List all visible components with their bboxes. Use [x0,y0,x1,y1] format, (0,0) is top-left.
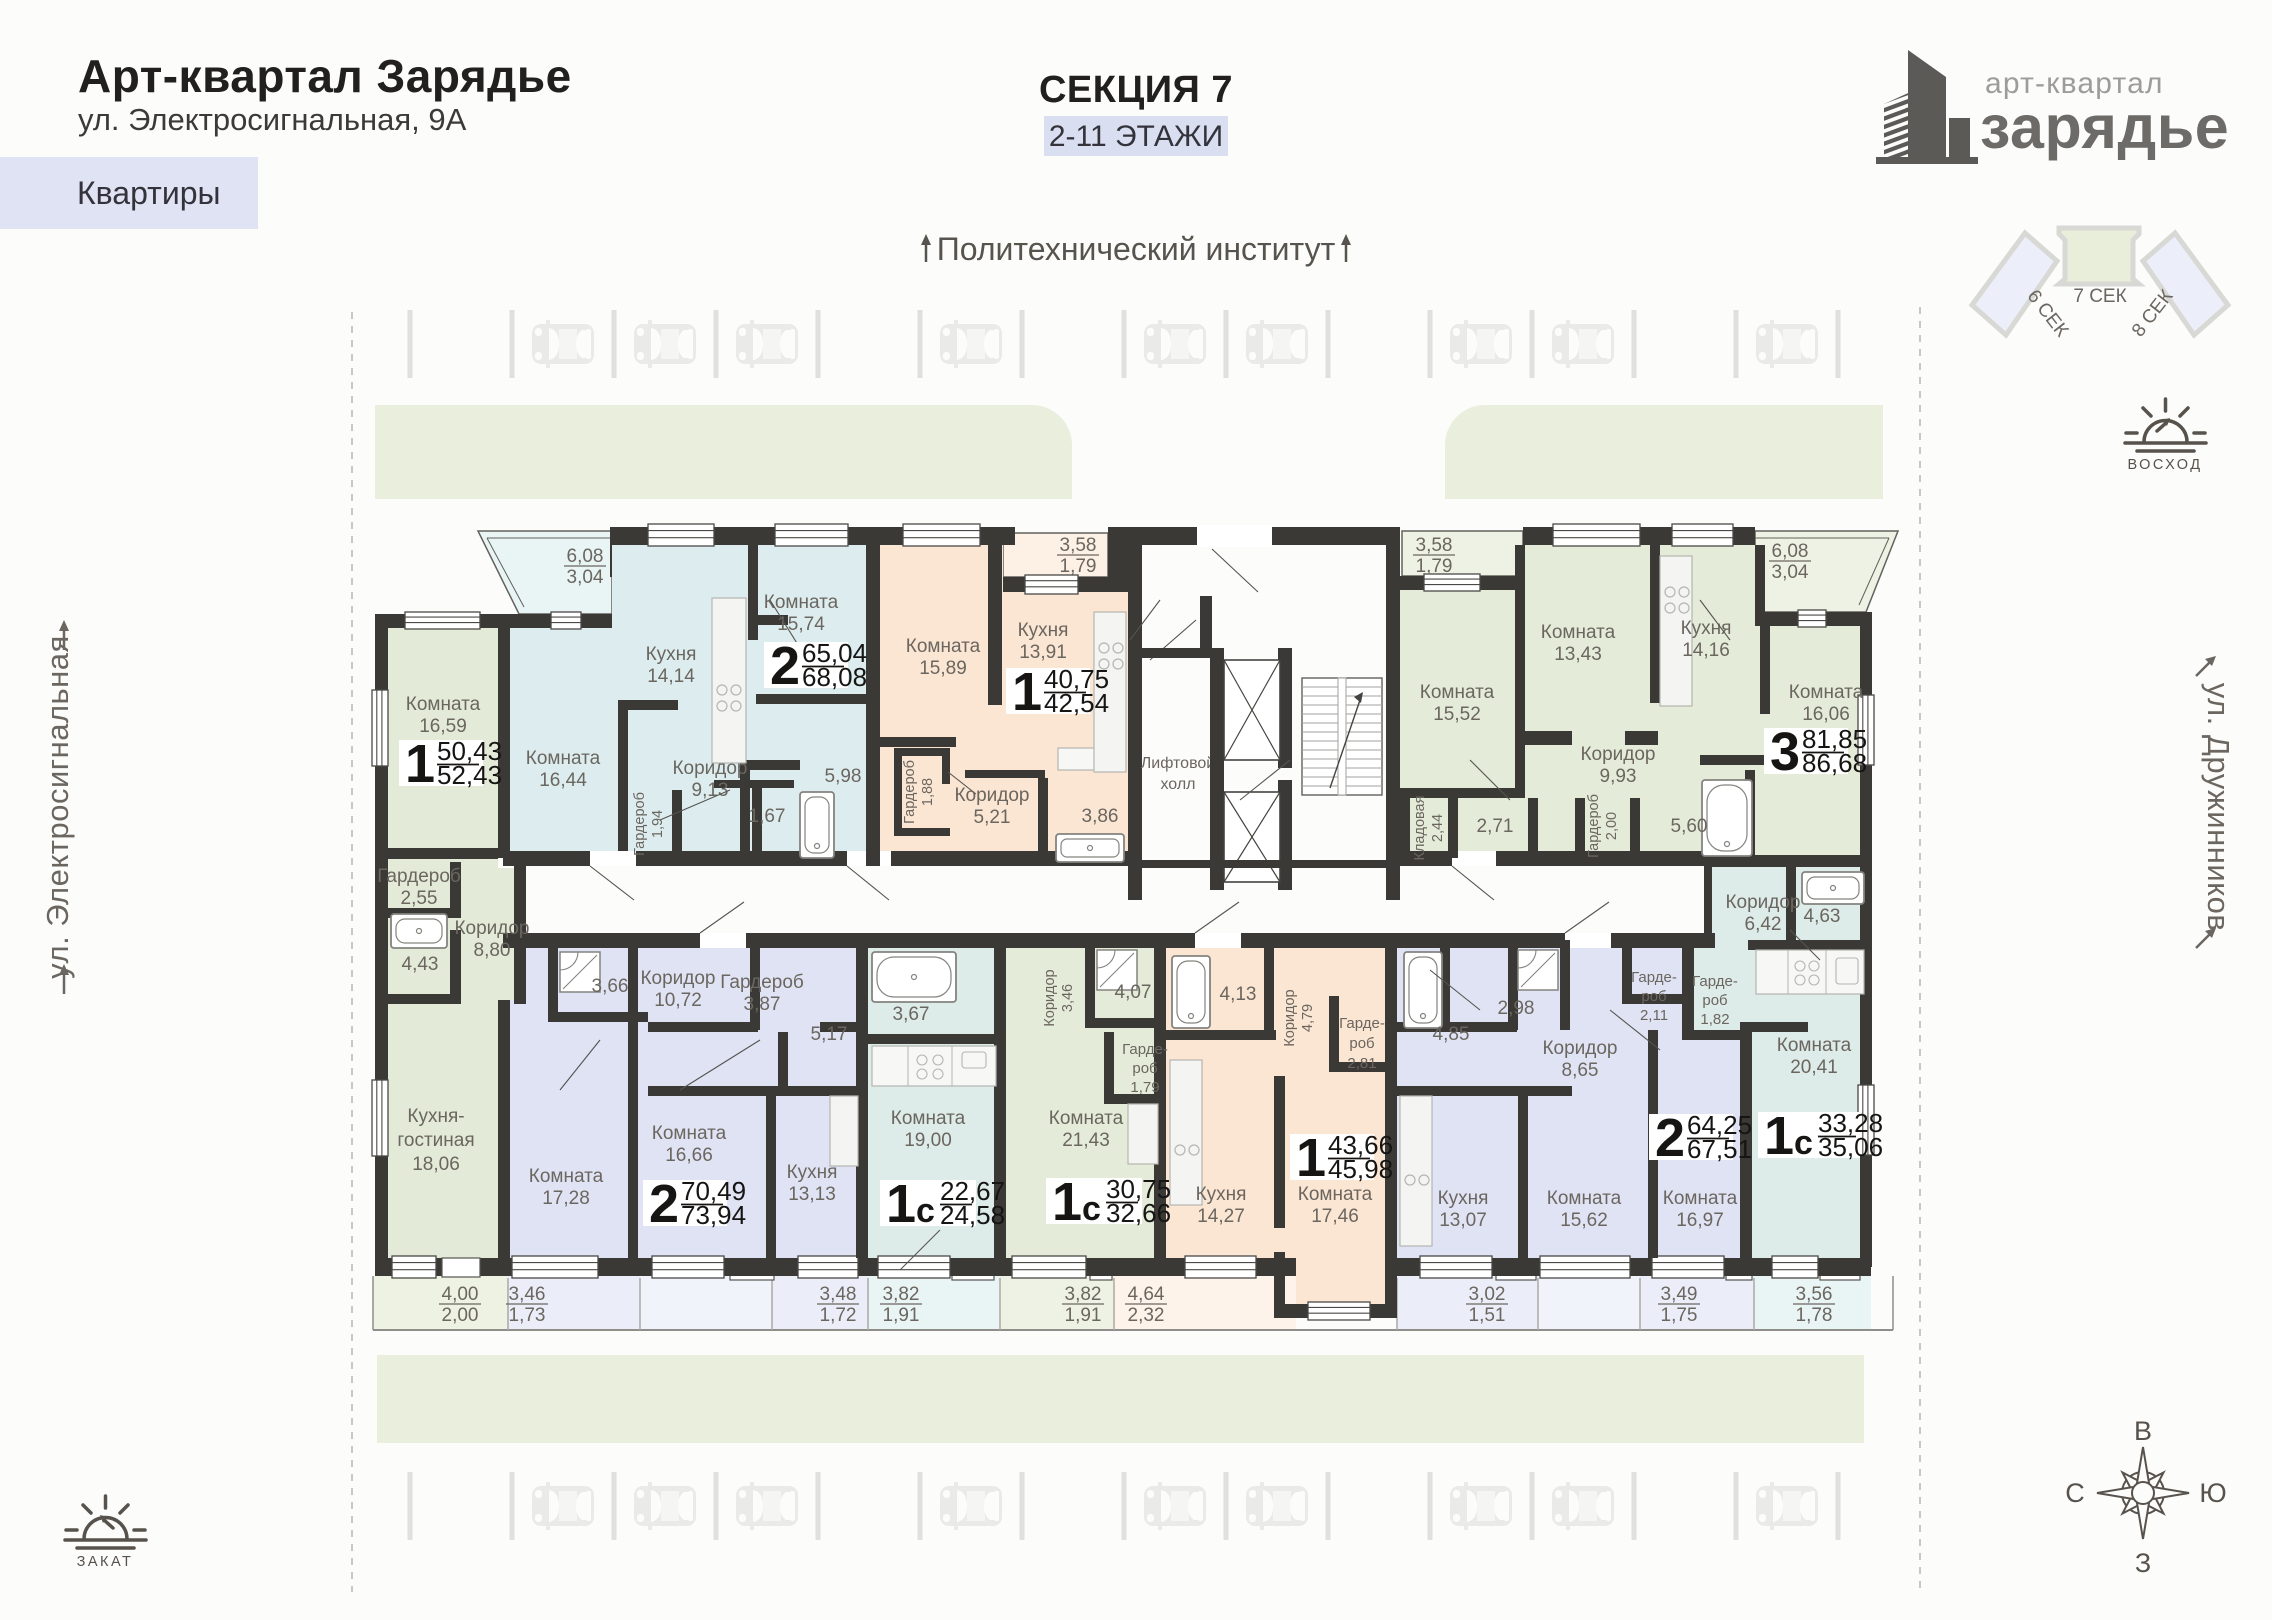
svg-text:роб: роб [1349,1035,1374,1052]
svg-text:Гардероб: Гардероб [377,866,461,887]
svg-text:32,66: 32,66 [1106,1198,1171,1228]
svg-text:15,89: 15,89 [919,658,967,679]
svg-text:С: С [2065,1478,2085,1508]
svg-text:2,98: 2,98 [1498,998,1535,1019]
svg-text:3,67: 3,67 [893,1004,930,1025]
svg-text:52,43: 52,43 [437,760,502,790]
svg-text:5,21: 5,21 [974,807,1011,828]
svg-text:7 СЕК: 7 СЕК [2073,286,2126,307]
svg-text:зарядье: зарядье [1980,93,2229,161]
svg-text:15,62: 15,62 [1560,1210,1608,1231]
svg-text:Коридор: Коридор [1282,989,1298,1046]
svg-text:3,49: 3,49 [1661,1284,1698,1305]
svg-text:4,07: 4,07 [1115,982,1152,1003]
svg-text:6,42: 6,42 [1745,914,1782,935]
svg-text:3,02: 3,02 [1469,1284,1506,1305]
svg-text:2-11 ЭТАЖИ: 2-11 ЭТАЖИ [1049,120,1223,153]
svg-text:1,78: 1,78 [1796,1305,1833,1326]
svg-text:8,80: 8,80 [474,940,511,961]
svg-text:Кухня: Кухня [1018,620,1069,641]
svg-text:14,16: 14,16 [1682,640,1730,661]
svg-text:Кладовая: Кладовая [1412,796,1428,861]
svg-text:В: В [2134,1416,2152,1446]
svg-text:2: 2 [649,1174,679,1234]
svg-text:3,82: 3,82 [1065,1284,1102,1305]
svg-text:3,48: 3,48 [820,1284,857,1305]
svg-text:16,97: 16,97 [1676,1210,1724,1231]
svg-text:15,74: 15,74 [777,614,825,635]
svg-text:роб: роб [1702,992,1727,1009]
svg-text:Коридор: Коридор [1580,744,1655,765]
svg-text:3,82: 3,82 [883,1284,920,1305]
svg-text:Гарде-: Гарде- [1692,973,1738,990]
svg-text:20,41: 20,41 [1790,1057,1838,1078]
svg-text:3,86: 3,86 [1082,806,1119,827]
svg-text:16,66: 16,66 [665,1145,713,1166]
svg-text:Коридор: Коридор [672,758,747,779]
svg-text:Коридор: Коридор [1042,969,1058,1026]
svg-text:16,06: 16,06 [1802,704,1850,725]
svg-text:Комната: Комната [764,592,839,613]
svg-text:73,94: 73,94 [681,1200,746,1230]
svg-text:1,79: 1,79 [1416,556,1453,577]
svg-text:Комната: Комната [1049,1108,1124,1129]
svg-text:ул. Электросигнальная, 9А: ул. Электросигнальная, 9А [78,102,467,137]
svg-text:86,68: 86,68 [1802,748,1867,778]
svg-text:18,06: 18,06 [412,1154,460,1175]
svg-text:2: 2 [770,636,800,696]
svg-text:Комната: Комната [1777,1035,1852,1056]
svg-text:19,00: 19,00 [904,1130,952,1151]
svg-text:ЗАКАТ: ЗАКАТ [77,1554,134,1570]
svg-text:10,72: 10,72 [654,990,702,1011]
svg-text:3,46: 3,46 [509,1284,546,1305]
svg-text:3,46: 3,46 [1060,984,1076,1012]
svg-text:3,04: 3,04 [567,567,604,588]
svg-text:9,93: 9,93 [1600,766,1637,787]
svg-text:5,17: 5,17 [811,1024,848,1045]
svg-text:Лифтовой: Лифтовой [1141,755,1215,772]
svg-text:4,64: 4,64 [1128,1284,1165,1305]
svg-text:3,58: 3,58 [1416,535,1453,556]
svg-text:Кухня: Кухня [646,644,697,665]
svg-text:Комната: Комната [652,1123,727,1144]
svg-text:Кухня: Кухня [1196,1184,1247,1205]
svg-text:35,06: 35,06 [1818,1132,1883,1162]
svg-text:Арт-квартал Зарядье: Арт-квартал Зарядье [78,50,572,102]
svg-text:15,52: 15,52 [1433,704,1481,725]
svg-text:Комната: Комната [891,1108,966,1129]
svg-text:2,11: 2,11 [1640,1007,1668,1024]
svg-text:Комната: Комната [1663,1188,1738,1209]
svg-text:Гардероб: Гардероб [902,760,918,824]
svg-text:Комната: Комната [406,694,481,715]
svg-text:3: 3 [1770,722,1800,782]
svg-text:Комната: Комната [1541,622,1616,643]
svg-text:13,13: 13,13 [788,1184,836,1205]
svg-text:2,00: 2,00 [442,1305,479,1326]
svg-text:6,08: 6,08 [567,546,604,567]
svg-text:3,87: 3,87 [744,994,781,1015]
svg-text:3,58: 3,58 [1060,535,1097,556]
svg-text:Коридор: Коридор [640,968,715,989]
svg-text:3,04: 3,04 [1772,562,1809,583]
svg-text:17,46: 17,46 [1311,1206,1359,1227]
svg-text:Гардероб: Гардероб [720,972,804,993]
svg-text:холл: холл [1160,776,1195,793]
svg-text:3,66: 3,66 [592,976,629,997]
svg-text:2: 2 [1655,1108,1685,1168]
svg-text:1,67: 1,67 [749,806,786,827]
svg-text:8,65: 8,65 [1562,1060,1599,1081]
svg-text:2,32: 2,32 [1128,1305,1165,1326]
svg-text:ул. Дружинников: ул. Дружинников [2201,683,2236,932]
svg-text:2,44: 2,44 [1430,814,1446,842]
svg-text:Кухня: Кухня [1438,1188,1489,1209]
svg-text:Кухня-: Кухня- [407,1106,464,1127]
svg-text:1,91: 1,91 [883,1305,920,1326]
svg-text:1: 1 [405,734,435,794]
svg-text:Комната: Комната [526,748,601,769]
svg-text:СЕКЦИЯ 7: СЕКЦИЯ 7 [1039,69,1233,111]
svg-text:роб: роб [1132,1060,1157,1077]
svg-text:2,00: 2,00 [1604,812,1620,840]
svg-text:2,55: 2,55 [401,888,438,909]
svg-text:17,28: 17,28 [542,1188,590,1209]
svg-text:3,56: 3,56 [1796,1284,1833,1305]
svg-text:Коридор: Коридор [954,785,1029,806]
svg-text:Комната: Комната [1420,682,1495,703]
svg-text:1,73: 1,73 [509,1305,546,1326]
svg-text:16,44: 16,44 [539,770,587,791]
svg-text:68,08: 68,08 [802,662,867,692]
svg-text:Комната: Комната [1547,1188,1622,1209]
svg-text:21,43: 21,43 [1062,1130,1110,1151]
svg-text:Коридор: Коридор [454,918,529,939]
svg-text:Гардероб: Гардероб [632,792,648,856]
svg-text:45,98: 45,98 [1328,1154,1393,1184]
svg-text:1,88: 1,88 [920,778,936,806]
svg-text:4,63: 4,63 [1804,906,1841,927]
svg-text:67,51: 67,51 [1687,1134,1752,1164]
svg-text:5,60: 5,60 [1671,816,1708,837]
svg-text:Политехнический институт: Политехнический институт [937,231,1336,267]
svg-text:З: З [2135,1548,2151,1578]
svg-text:1,79: 1,79 [1130,1079,1159,1096]
svg-text:4,13: 4,13 [1220,984,1257,1005]
svg-text:гостиная: гостиная [397,1130,474,1151]
svg-text:Комната: Комната [906,636,981,657]
svg-text:1,79: 1,79 [1060,556,1097,577]
svg-text:Комната: Комната [1789,682,1864,703]
svg-text:1,75: 1,75 [1661,1305,1698,1326]
svg-text:Коридор: Коридор [1725,892,1800,913]
svg-text:ВОСХОД: ВОСХОД [2127,457,2202,473]
svg-text:1: 1 [1296,1128,1326,1188]
svg-text:4,00: 4,00 [442,1284,479,1305]
svg-text:13,07: 13,07 [1439,1210,1487,1231]
svg-text:Гарде-: Гарде- [1339,1015,1385,1032]
svg-text:1: 1 [1012,662,1042,722]
svg-text:9,13: 9,13 [692,780,729,801]
svg-text:13,91: 13,91 [1019,642,1067,663]
svg-text:Комната: Комната [529,1166,604,1187]
svg-text:ул. Электросигнальная: ул. Электросигнальная [40,635,75,979]
svg-text:6,08: 6,08 [1772,541,1809,562]
svg-text:Гардероб: Гардероб [1586,794,1602,858]
svg-text:Гарде-: Гарде- [1631,969,1677,986]
svg-text:1,82: 1,82 [1700,1011,1729,1028]
svg-text:4,79: 4,79 [1300,1004,1316,1032]
svg-text:Коридор: Коридор [1542,1038,1617,1059]
svg-text:42,54: 42,54 [1044,688,1109,718]
svg-text:1,94: 1,94 [650,810,666,838]
svg-text:роб: роб [1641,988,1666,1005]
svg-text:1,51: 1,51 [1469,1305,1506,1326]
svg-text:5,98: 5,98 [825,766,862,787]
svg-text:13,43: 13,43 [1554,644,1602,665]
svg-text:Ю: Ю [2199,1478,2226,1508]
svg-text:Квартиры: Квартиры [77,175,221,211]
svg-text:14,27: 14,27 [1197,1206,1245,1227]
svg-text:Кухня: Кухня [1681,618,1732,639]
svg-text:4,85: 4,85 [1433,1024,1470,1045]
svg-text:Гарде-: Гарде- [1122,1041,1168,1058]
svg-text:2,81: 2,81 [1347,1055,1376,1072]
svg-text:14,14: 14,14 [647,666,695,687]
svg-text:1,72: 1,72 [820,1305,857,1326]
svg-text:1,91: 1,91 [1065,1305,1102,1326]
svg-text:2,71: 2,71 [1477,816,1514,837]
svg-text:24,58: 24,58 [940,1200,1005,1230]
svg-text:4,43: 4,43 [402,954,439,975]
